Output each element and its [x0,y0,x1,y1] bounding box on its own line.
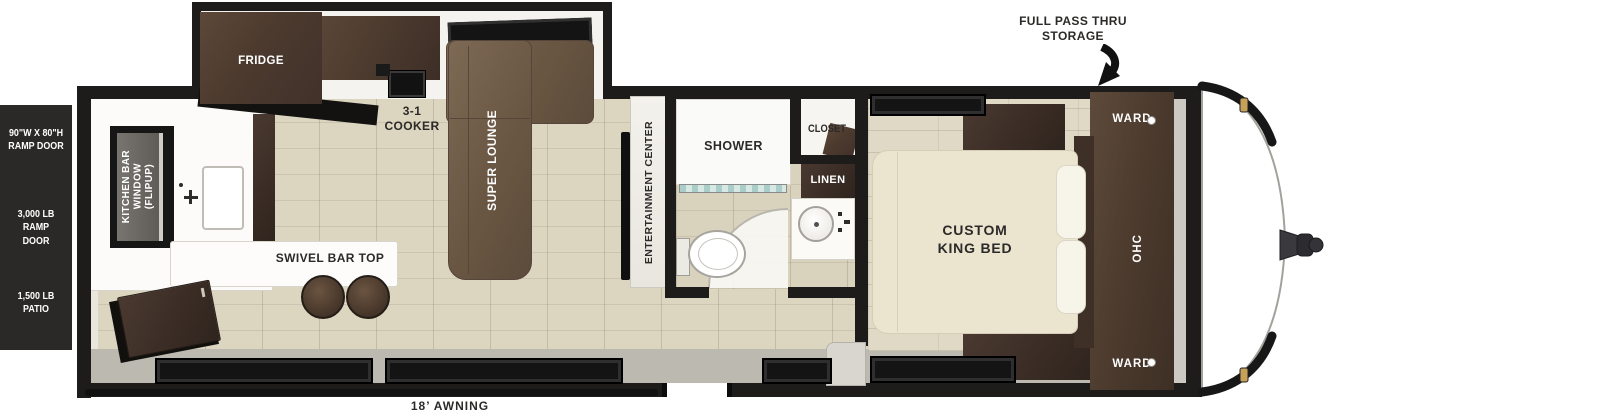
shower-label: SHOWER [676,138,791,154]
bedroom-window-top [870,94,986,116]
kitchen-bar-window-glass: KITCHEN BAR WINDOW (FLIPUP) [117,133,163,241]
cooktop [388,70,426,98]
bathroom-wall-left [665,92,676,298]
closet-wall-vertical [790,92,801,164]
cabinet-knob [1147,116,1156,125]
swivel-bar-label: SWIVEL BAR TOP [240,251,420,266]
kitchen-sink [202,166,244,230]
rv-floorplan: KITCHEN BAR WINDOW (FLIPUP) SWIVEL BAR T… [0,0,1600,416]
ward-top-label: WARD [1090,112,1174,127]
hitch-coupler [1280,230,1323,260]
cabinet-knob [1147,358,1156,367]
linen-label: LINEN [801,173,855,187]
clearance-light [1240,368,1248,382]
toilet-seat [698,238,738,270]
kitchen-bar-window-label: KITCHEN BAR WINDOW (FLIPUP) [121,150,156,223]
sofa-seam [468,46,469,274]
bar-stool [346,275,390,319]
bathroom-wall-bottom-a [665,287,709,298]
cooktop-control [376,64,390,76]
awning-label: 18’ AWNING [375,399,525,414]
fridge-label: FRIDGE [211,54,311,69]
bedroom-step [826,342,866,386]
super-lounge-label: SUPER LOUNGE [486,110,500,211]
closet-label: CLOSET [798,122,856,136]
king-bed-label: CUSTOM KING BED [880,222,1070,258]
bath-faucet-icon [838,212,842,216]
window [762,358,832,384]
entry-door [662,383,732,397]
exterior-wall-left [77,86,91,398]
cooker-label: 3-1 COOKER [372,104,452,135]
window [155,358,373,384]
ramp-rating-label: 3,000 LB RAMP DOOR [5,208,66,248]
kitchen-cabinet-panel [253,114,275,244]
pass-thru-arrow-icon [1072,44,1128,88]
tv-icon [621,132,630,280]
clearance-light [1240,98,1248,112]
pass-thru-label: FULL PASS THRU STORAGE [1007,14,1139,45]
bar-stool [301,275,345,319]
faucet-icon-vertical [189,190,192,204]
entertainment-center-label: ENTERTAINMENT CENTER [643,121,655,264]
bath-faucet-icon [838,228,842,232]
bedroom-window-bottom [870,356,1016,383]
window [385,358,623,384]
bath-faucet-icon [844,220,850,224]
front-cap [1196,76,1331,406]
patio-rating-label: 1,500 LB PATIO [5,290,66,317]
shower-glass [679,184,787,193]
exterior-wall-top-left [77,86,199,99]
sink-drain [814,222,819,227]
bedroom-wall [855,92,868,346]
awning-line [85,389,658,396]
ohc-label: OHC [1132,234,1145,263]
ward-bottom-label: WARD [1090,357,1174,372]
ramp-door-size-label: 90"W X 80"H RAMP DOOR [5,127,66,154]
faucet-dot [179,183,183,187]
front-wall-liner [1174,99,1186,383]
